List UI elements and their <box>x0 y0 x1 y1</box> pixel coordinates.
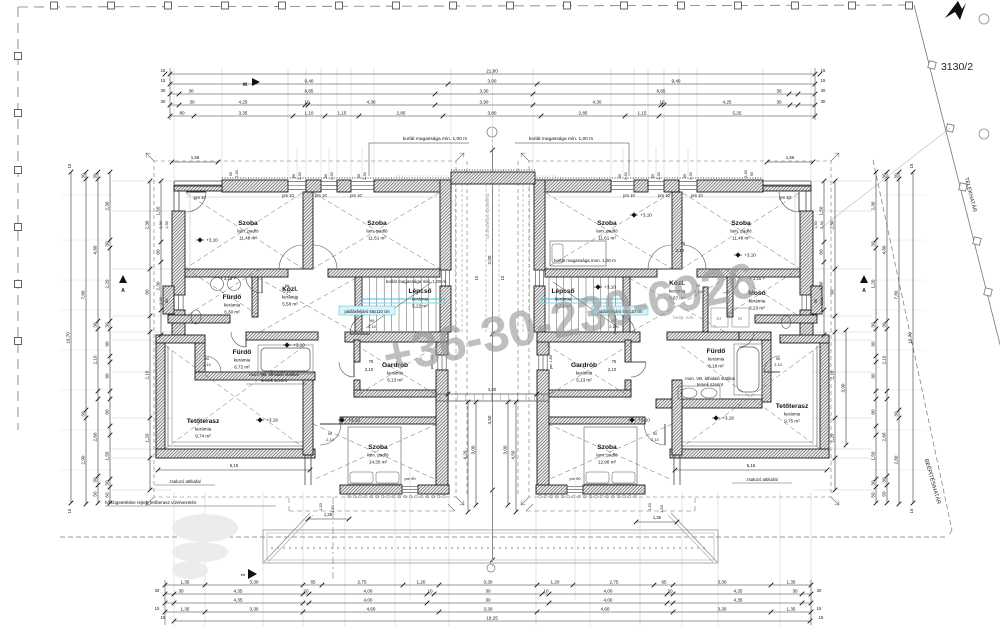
svg-text:2,30: 2,30 <box>744 170 748 177</box>
svg-text:2,10: 2,10 <box>651 438 658 442</box>
svg-text:4,25: 4,25 <box>239 100 248 105</box>
svg-text:1,50: 1,50 <box>871 451 876 460</box>
svg-text:80: 80 <box>179 111 185 116</box>
svg-text:kerámia: kerámia <box>195 427 212 432</box>
svg-text:7,80: 7,80 <box>81 290 86 299</box>
svg-text:5,25: 5,25 <box>733 111 742 116</box>
svg-text:2,10: 2,10 <box>676 248 685 253</box>
svg-text:75: 75 <box>681 241 686 246</box>
svg-text:1,35: 1,35 <box>787 607 796 612</box>
svg-text:B: B <box>243 82 249 86</box>
svg-text:2,10: 2,10 <box>368 325 375 329</box>
svg-text:30: 30 <box>776 100 782 105</box>
svg-text:90: 90 <box>328 432 332 436</box>
svg-text:4,00: 4,00 <box>604 589 613 594</box>
svg-text:Tetőterasz: Tetőterasz <box>187 418 220 425</box>
svg-text:3,30: 3,30 <box>484 580 493 585</box>
svg-text:15: 15 <box>161 68 166 73</box>
svg-text:3,00: 3,00 <box>471 445 476 454</box>
svg-text:4,25: 4,25 <box>723 100 732 105</box>
svg-text:4,00: 4,00 <box>364 589 373 594</box>
svg-text:10: 10 <box>500 275 505 280</box>
svg-text:kerámia: kerámia <box>282 295 299 300</box>
svg-text:2,30: 2,30 <box>298 172 302 179</box>
svg-text:11,61 m²: 11,61 m² <box>368 236 386 241</box>
svg-text:80: 80 <box>105 409 110 415</box>
svg-text:pm 10: pm 10 <box>315 193 327 198</box>
svg-text:pm 90: pm 90 <box>569 476 581 481</box>
svg-text:4,30: 4,30 <box>367 100 376 105</box>
svg-text:12,98 m²: 12,98 m² <box>598 460 617 465</box>
svg-text:30: 30 <box>105 480 110 486</box>
svg-text:3,30: 3,30 <box>250 580 259 585</box>
svg-text:Szoba: Szoba <box>597 444 617 451</box>
svg-text:90: 90 <box>830 289 835 295</box>
svg-text:korlát magassága mon. 1,00 m: korlát magassága mon. 1,00 m <box>554 258 616 263</box>
svg-text:1,20: 1,20 <box>417 580 426 585</box>
svg-text:9,75 m²: 9,75 m² <box>784 419 800 424</box>
svg-text:6,30 m²: 6,30 m² <box>224 310 240 315</box>
svg-text:10: 10 <box>427 589 433 594</box>
svg-text:Lépcső: Lépcső <box>408 288 431 295</box>
svg-text:2,10: 2,10 <box>882 355 887 364</box>
svg-text:30: 30 <box>776 89 782 94</box>
svg-text:5,22 m²: 5,22 m² <box>412 304 428 309</box>
svg-text:M: M <box>738 316 742 321</box>
svg-text:60: 60 <box>618 174 622 178</box>
svg-text:75: 75 <box>612 359 617 364</box>
svg-text:1,20: 1,20 <box>145 433 150 442</box>
svg-text:15: 15 <box>909 508 914 513</box>
svg-text:10: 10 <box>543 589 549 594</box>
svg-text:7,80: 7,80 <box>894 290 899 299</box>
svg-text:30: 30 <box>792 589 798 594</box>
svg-text:1,35: 1,35 <box>181 607 190 612</box>
svg-text:1,35: 1,35 <box>787 580 796 585</box>
svg-text:30: 30 <box>817 588 822 593</box>
svg-text:10,70: 10,70 <box>908 332 913 344</box>
svg-text:90: 90 <box>871 373 876 379</box>
svg-text:2,10: 2,10 <box>774 363 781 367</box>
svg-text:30: 30 <box>871 480 876 486</box>
svg-text:kerámia: kerámia <box>708 357 725 362</box>
svg-text:2,30: 2,30 <box>105 201 110 210</box>
svg-text:+3,10: +3,10 <box>348 418 360 423</box>
svg-text:80: 80 <box>145 289 150 295</box>
svg-text:30: 30 <box>485 598 491 603</box>
svg-text:2,30: 2,30 <box>159 221 163 228</box>
svg-text:+3,18: +3,18 <box>722 416 734 421</box>
svg-text:90: 90 <box>871 341 876 347</box>
svg-text:mon. VB. áthidaló statikai: mon. VB. áthidaló statikai <box>249 372 299 377</box>
svg-text:Fürdő: Fürdő <box>707 348 726 355</box>
svg-text:6,72 m²: 6,72 m² <box>234 365 250 370</box>
svg-text:4,80: 4,80 <box>882 245 887 254</box>
svg-text:30: 30 <box>93 322 98 328</box>
svg-text:3,30: 3,30 <box>488 387 497 392</box>
svg-text:+3,10: +3,10 <box>206 238 218 243</box>
svg-text:4,50: 4,50 <box>487 415 492 424</box>
svg-text:9,40: 9,40 <box>672 79 681 84</box>
svg-text:1,50: 1,50 <box>814 221 818 228</box>
svg-text:3,30: 3,30 <box>718 580 727 585</box>
svg-text:9,74 m²: 9,74 m² <box>195 434 211 439</box>
svg-text:4,20: 4,20 <box>463 450 468 459</box>
svg-text:3,00: 3,00 <box>488 79 497 84</box>
svg-text:2,30: 2,30 <box>363 172 367 179</box>
svg-text:A: A <box>862 288 866 294</box>
svg-text:pm 10: pm 10 <box>623 193 635 198</box>
svg-text:1,35: 1,35 <box>181 580 190 585</box>
svg-text:tervek szerint: tervek szerint <box>261 378 288 383</box>
svg-text:korlát magassága min. 1,00 m: korlát magassága min. 1,00 m <box>403 136 467 142</box>
svg-text:pm 10: pm 10 <box>350 193 362 198</box>
svg-text:4,80: 4,80 <box>93 245 98 254</box>
svg-text:pm 10: pm 10 <box>282 193 294 198</box>
svg-text:30: 30 <box>93 477 98 483</box>
svg-text:20: 20 <box>303 589 309 594</box>
svg-text:60: 60 <box>292 174 296 178</box>
svg-text:kerámia: kerámia <box>784 412 801 417</box>
svg-text:2,85: 2,85 <box>397 111 406 116</box>
svg-text:11,48 m²: 11,48 m² <box>732 236 750 241</box>
svg-text:2,60: 2,60 <box>882 432 887 441</box>
svg-text:60: 60 <box>357 174 361 178</box>
svg-text:kerámia: kerámia <box>412 297 429 302</box>
svg-text:+ 3,15 +: + 3,15 + <box>220 276 236 281</box>
svg-text:3,30: 3,30 <box>250 607 259 612</box>
svg-text:1,20: 1,20 <box>318 502 323 511</box>
svg-text:10: 10 <box>659 100 665 105</box>
svg-text:lam. padló: lam. padló <box>596 229 618 234</box>
svg-text:2,30: 2,30 <box>871 201 876 210</box>
svg-text:pm 10: pm 10 <box>658 193 670 198</box>
svg-text:2,60: 2,60 <box>93 432 98 441</box>
svg-text:lam. padló: lam. padló <box>237 229 259 234</box>
svg-text:korlát magassága min. 1,00 m: korlát magassága min. 1,00 m <box>386 279 447 284</box>
svg-text:4,00: 4,00 <box>364 598 373 603</box>
svg-text:8,65: 8,65 <box>657 89 666 94</box>
svg-text:2,30: 2,30 <box>689 172 693 179</box>
svg-text:3,30: 3,30 <box>484 607 493 612</box>
svg-text:3,00: 3,00 <box>503 445 508 454</box>
svg-text:30: 30 <box>485 589 491 594</box>
svg-text:30: 30 <box>105 241 110 247</box>
svg-text:3,35: 3,35 <box>239 111 248 116</box>
svg-text:2,75: 2,75 <box>610 580 619 585</box>
svg-text:30: 30 <box>188 89 194 94</box>
svg-text:20: 20 <box>667 589 673 594</box>
svg-text:50: 50 <box>105 492 110 498</box>
svg-text:15: 15 <box>67 163 72 168</box>
svg-text:60: 60 <box>683 174 687 178</box>
svg-text:3,90: 3,90 <box>480 100 489 105</box>
svg-text:2,10: 2,10 <box>283 290 290 294</box>
svg-text:60: 60 <box>819 249 824 255</box>
svg-text:tervek szerint: tervek szerint <box>697 382 724 387</box>
svg-text:szomszédos épületrész: szomszédos épületrész <box>485 193 490 239</box>
svg-text:4,50: 4,50 <box>511 450 516 459</box>
svg-text:pm 10: pm 10 <box>779 195 791 200</box>
svg-text:Szoba: Szoba <box>731 220 751 227</box>
svg-text:2,10: 2,10 <box>93 355 98 364</box>
svg-text:1,20: 1,20 <box>647 502 652 511</box>
svg-text:75: 75 <box>369 359 374 364</box>
svg-text:10,70: 10,70 <box>66 332 71 344</box>
svg-text:80: 80 <box>814 299 818 303</box>
svg-text:1,50: 1,50 <box>105 451 110 460</box>
svg-text:30: 30 <box>821 99 826 104</box>
svg-text:65: 65 <box>310 580 316 585</box>
svg-text:2,30: 2,30 <box>235 170 239 177</box>
svg-text:90: 90 <box>370 319 374 323</box>
svg-text:2,30: 2,30 <box>820 297 824 304</box>
svg-text:lam. padló: lam. padló <box>366 229 388 234</box>
svg-text:3130/2: 3130/2 <box>941 61 973 73</box>
svg-text:30: 30 <box>178 589 184 594</box>
svg-text:2,30: 2,30 <box>330 172 334 179</box>
svg-text:pm 1,80: pm 1,80 <box>549 355 553 369</box>
svg-text:4,35: 4,35 <box>234 589 243 594</box>
svg-text:mon. VB. áthidaló statikai: mon. VB. áthidaló statikai <box>685 376 735 381</box>
svg-text:zsaluzó attikafal: zsaluzó attikafal <box>169 479 200 484</box>
svg-text:5,13 m²: 5,13 m² <box>576 378 592 383</box>
svg-text:14,30 m²: 14,30 m² <box>369 460 388 465</box>
svg-text:90: 90 <box>105 373 110 379</box>
svg-text:lam. padló: lam. padló <box>596 453 618 458</box>
svg-text:4,35: 4,35 <box>234 598 243 603</box>
svg-text:eb: eb <box>241 572 246 577</box>
svg-text:lam. padló: lam. padló <box>730 229 752 234</box>
svg-text:10: 10 <box>474 275 479 280</box>
svg-text:2,85: 2,85 <box>579 111 588 116</box>
svg-text:korlát magassága min. 1,00 m: korlát magassága min. 1,00 m <box>529 136 593 142</box>
svg-text:2,10: 2,10 <box>326 438 333 442</box>
svg-text:30: 30 <box>81 173 86 179</box>
svg-text:Szoba: Szoba <box>367 220 387 227</box>
svg-text:5,15: 5,15 <box>230 463 239 468</box>
svg-text:A: A <box>121 288 125 294</box>
svg-text:15: 15 <box>161 78 166 83</box>
svg-text:pádlásfeljáró 55x110 cm: pádlásfeljáró 55x110 cm <box>344 309 390 314</box>
svg-text:pm 10: pm 10 <box>194 195 206 200</box>
svg-text:15: 15 <box>909 163 914 168</box>
svg-text:4,00: 4,00 <box>604 598 613 603</box>
svg-text:30: 30 <box>161 88 166 93</box>
svg-text:2,80: 2,80 <box>894 455 899 464</box>
svg-text:2,30: 2,30 <box>820 221 824 228</box>
svg-text:+3,10: +3,10 <box>638 418 650 423</box>
svg-text:Gardrób: Gardrób <box>571 362 597 369</box>
svg-text:1,20: 1,20 <box>830 433 835 442</box>
svg-text:kerámia: kerámia <box>224 303 241 308</box>
svg-text:4,60: 4,60 <box>367 607 376 612</box>
svg-text:30: 30 <box>105 322 110 328</box>
svg-text:15: 15 <box>817 606 822 611</box>
svg-text:15: 15 <box>155 606 160 611</box>
svg-text:2,00: 2,00 <box>487 255 492 264</box>
svg-text:2,10: 2,10 <box>830 370 835 379</box>
svg-text:90: 90 <box>285 284 289 288</box>
svg-text:2,10: 2,10 <box>608 367 617 372</box>
svg-text:2,10: 2,10 <box>145 370 150 379</box>
svg-text:1,50: 1,50 <box>330 504 335 513</box>
svg-text:+3,10: +3,10 <box>293 343 305 348</box>
svg-text:11,48 m²: 11,48 m² <box>239 236 257 241</box>
svg-text:60: 60 <box>651 174 655 178</box>
svg-text:10: 10 <box>304 100 310 105</box>
svg-text:3,80: 3,80 <box>488 111 497 116</box>
svg-text:Fürdő: Fürdő <box>223 294 242 301</box>
svg-text:8,18 m²: 8,18 m² <box>708 364 724 369</box>
svg-text:90: 90 <box>105 341 110 347</box>
svg-text:1,20: 1,20 <box>551 580 560 585</box>
svg-text:19,25: 19,25 <box>486 616 498 621</box>
svg-text:30: 30 <box>871 241 876 247</box>
svg-text:4,60: 4,60 <box>601 607 610 612</box>
svg-text:1,55: 1,55 <box>191 155 200 160</box>
svg-text:30: 30 <box>882 322 887 328</box>
svg-text:50: 50 <box>93 491 98 497</box>
svg-text:80: 80 <box>871 409 876 415</box>
svg-text:1,15: 1,15 <box>338 111 347 116</box>
svg-text:30: 30 <box>93 173 98 179</box>
svg-text:+3,10: +3,10 <box>640 213 652 218</box>
svg-text:3,30: 3,30 <box>718 607 727 612</box>
svg-text:2,20: 2,20 <box>105 279 110 288</box>
svg-text:4,35: 4,35 <box>734 589 743 594</box>
svg-text:30: 30 <box>882 173 887 179</box>
svg-text:15: 15 <box>821 78 826 83</box>
svg-text:5,58 m²: 5,58 m² <box>282 302 298 307</box>
svg-text:1,20: 1,20 <box>871 279 876 288</box>
svg-text:3,90: 3,90 <box>841 383 846 392</box>
svg-text:50: 50 <box>882 491 887 497</box>
svg-text:Sz: Sz <box>716 316 722 321</box>
svg-text:1,50: 1,50 <box>659 504 664 513</box>
svg-text:30: 30 <box>894 411 899 417</box>
svg-text:Tetőterasz: Tetőterasz <box>776 403 809 410</box>
svg-text:2,30: 2,30 <box>145 220 150 229</box>
svg-text:Szoba: Szoba <box>238 220 258 227</box>
svg-text:90: 90 <box>205 357 209 361</box>
svg-text:30: 30 <box>821 88 826 93</box>
svg-text:2,10: 2,10 <box>365 367 374 372</box>
svg-text:30: 30 <box>871 322 876 328</box>
svg-text:30: 30 <box>882 477 887 483</box>
svg-text:60: 60 <box>156 249 161 255</box>
svg-text:30: 30 <box>81 411 86 417</box>
svg-text:8,65: 8,65 <box>305 89 314 94</box>
svg-text:50: 50 <box>871 492 876 498</box>
svg-text:1,15: 1,15 <box>638 111 647 116</box>
svg-text:1,50: 1,50 <box>156 206 161 215</box>
svg-text:90: 90 <box>776 357 780 361</box>
svg-text:2,30: 2,30 <box>156 281 161 290</box>
svg-text:4,30: 4,30 <box>593 100 602 105</box>
svg-text:4,35: 4,35 <box>734 598 743 603</box>
svg-text:3,30: 3,30 <box>480 89 489 94</box>
svg-text:90: 90 <box>750 172 754 176</box>
svg-text:Fürdő: Fürdő <box>233 349 252 356</box>
svg-text:11,61 m²: 11,61 m² <box>598 236 616 241</box>
svg-text:2,30: 2,30 <box>624 172 628 179</box>
svg-text:90: 90 <box>229 172 233 176</box>
svg-text:1,50: 1,50 <box>819 206 824 215</box>
svg-text:90: 90 <box>653 432 657 436</box>
svg-text:1,10: 1,10 <box>305 111 314 116</box>
svg-text:2,30: 2,30 <box>657 172 661 179</box>
svg-text:21,80: 21,80 <box>486 69 498 74</box>
svg-text:2,75: 2,75 <box>358 580 367 585</box>
svg-text:1,35: 1,35 <box>653 515 662 520</box>
svg-text:2,30: 2,30 <box>819 281 824 290</box>
svg-text:kerámia: kerámia <box>576 371 593 376</box>
svg-text:5,15: 5,15 <box>747 463 756 468</box>
svg-text:65: 65 <box>661 580 667 585</box>
svg-text:30: 30 <box>161 99 166 104</box>
svg-text:30: 30 <box>894 173 899 179</box>
svg-text:15: 15 <box>67 508 72 513</box>
svg-text:lam. padló: lam. padló <box>367 453 389 458</box>
svg-text:pm 90: pm 90 <box>404 476 416 481</box>
svg-text:pm 10: pm 10 <box>691 193 703 198</box>
svg-text:1,50: 1,50 <box>165 221 169 228</box>
svg-text:9,40: 9,40 <box>305 79 314 84</box>
svg-text:Szoba: Szoba <box>597 220 617 227</box>
svg-text:2,30: 2,30 <box>830 220 835 229</box>
svg-text:15: 15 <box>819 615 824 620</box>
svg-text:kerámia: kerámia <box>234 358 251 363</box>
svg-text:2,10: 2,10 <box>203 363 210 367</box>
svg-text:zsaluzó attikafal: zsaluzó attikafal <box>746 477 777 482</box>
svg-text:30: 30 <box>155 588 160 593</box>
svg-text:hőszigetelésbe rejtett tetőter: hőszigetelésbe rejtett tetőterasz vízelv… <box>105 500 197 505</box>
svg-text:Szoba: Szoba <box>368 444 388 451</box>
svg-text:1,55: 1,55 <box>786 155 795 160</box>
svg-text:2,30: 2,30 <box>159 297 163 304</box>
svg-text:+3,18: +3,18 <box>266 418 278 423</box>
svg-text:80: 80 <box>165 299 169 303</box>
svg-text:30: 30 <box>189 100 195 105</box>
svg-text:2,90: 2,90 <box>81 455 86 464</box>
svg-text:60: 60 <box>324 174 328 178</box>
